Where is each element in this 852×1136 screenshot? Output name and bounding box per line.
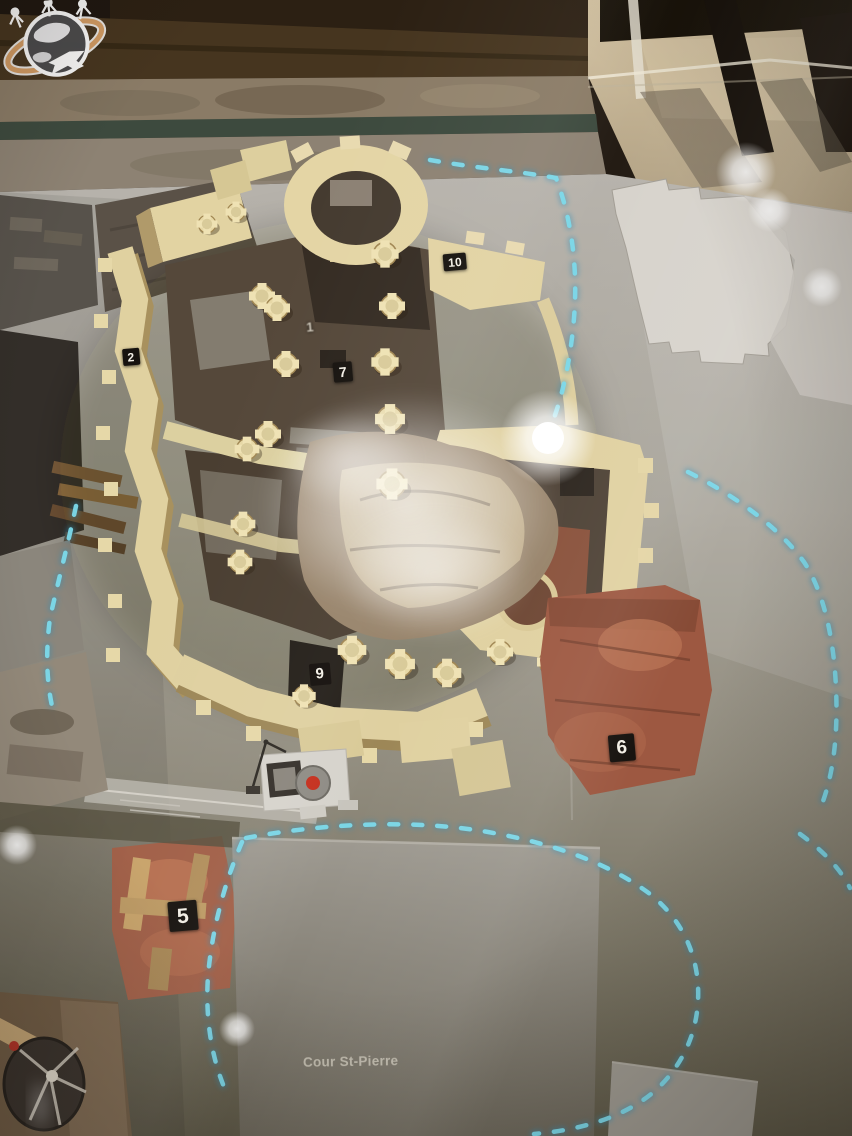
scene xyxy=(0,0,852,1136)
courtyard-label: Cour St-Pierre xyxy=(303,1053,399,1070)
red-button xyxy=(306,776,320,790)
building-footprint xyxy=(232,838,600,1136)
compass-medallion xyxy=(4,1038,86,1130)
globe-airplane-watermark-icon xyxy=(0,0,112,83)
red-detail xyxy=(9,1041,19,1051)
museum-model-photo: 12567910 Cour St-Pierre xyxy=(0,0,852,1136)
